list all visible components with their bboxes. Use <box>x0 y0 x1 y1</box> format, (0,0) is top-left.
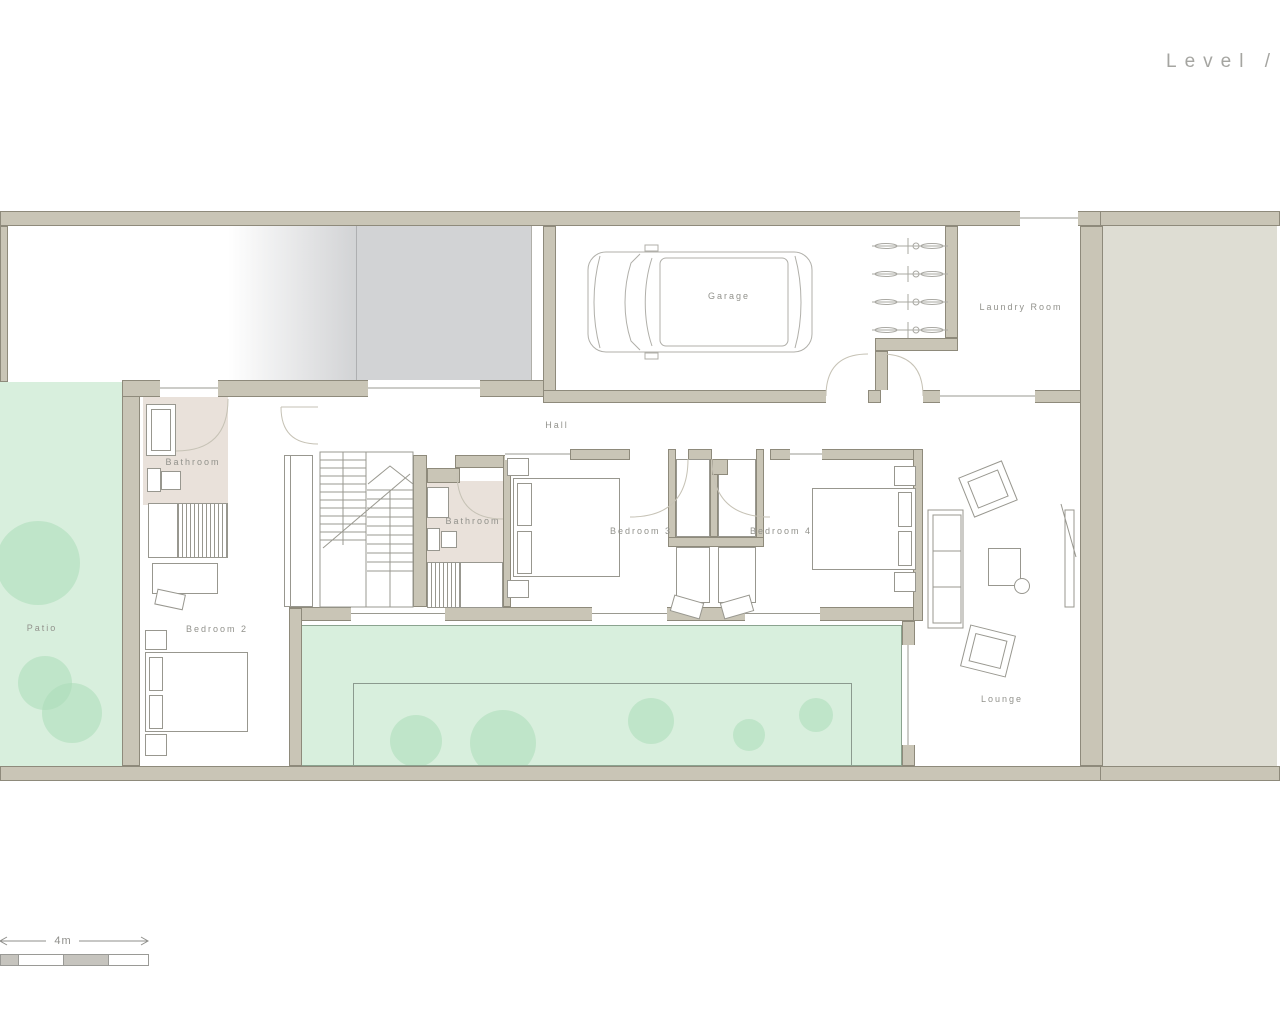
wall-segment <box>875 338 958 351</box>
tree-icon <box>0 521 80 605</box>
wardrobe-rail <box>427 562 460 608</box>
desk <box>152 563 218 594</box>
room-label-bathroom-1: Bathroom <box>165 457 220 467</box>
scale-bar <box>0 954 149 966</box>
toilet-tank <box>427 528 440 551</box>
closet <box>284 455 313 607</box>
armchair <box>961 625 1016 677</box>
toilet-bowl <box>161 471 181 490</box>
door-post <box>868 390 881 403</box>
scale-label: 4m <box>49 935 76 947</box>
window <box>902 645 915 745</box>
car-icon <box>588 245 812 359</box>
pillow <box>517 483 532 526</box>
wardrobe <box>460 562 503 608</box>
wall-segment <box>455 455 505 468</box>
window <box>1020 211 1078 226</box>
toilet-tank <box>147 468 161 492</box>
room-label-bedroom-4: Bedroom 4 <box>750 526 812 536</box>
desk <box>718 547 756 603</box>
nightstand <box>507 580 529 598</box>
tree-icon <box>628 698 674 744</box>
window <box>790 449 822 460</box>
closet-line <box>290 456 291 606</box>
garage-door <box>531 226 543 380</box>
page-title: Level / <box>1166 51 1278 73</box>
nightstand <box>507 458 529 476</box>
wall-segment <box>0 226 8 382</box>
room-label-laundry-room: Laundry Room <box>979 302 1062 312</box>
nightstand <box>894 572 916 592</box>
wall-segment <box>0 766 1280 781</box>
pillow <box>149 695 163 729</box>
door-opening <box>881 390 923 403</box>
door-opening <box>826 390 868 403</box>
window <box>160 380 218 397</box>
scale-segment <box>18 955 63 965</box>
wall-segment <box>668 537 764 547</box>
side-area <box>1103 226 1277 766</box>
closet <box>676 459 710 537</box>
sink <box>427 487 449 518</box>
pillow <box>149 657 163 691</box>
floor-plan-canvas: Level / <box>0 0 1280 1024</box>
driveway-ramp-gradient <box>228 226 356 380</box>
pillow <box>898 492 912 527</box>
wall-segment <box>1080 226 1103 766</box>
tree-icon <box>42 683 102 743</box>
wall-segment <box>945 226 958 338</box>
wardrobe <box>148 503 178 558</box>
room-label-bathroom-2: Bathroom <box>445 516 500 526</box>
room-label-bedroom-2: Bedroom 2 <box>186 624 248 634</box>
window <box>368 380 480 397</box>
sofa <box>928 510 963 628</box>
closet-block <box>712 459 728 475</box>
room-label-garage: Garage <box>708 291 750 301</box>
scale-segment <box>63 955 108 965</box>
wall-segment <box>543 226 556 397</box>
side-table <box>1014 578 1030 594</box>
wall-seam <box>1100 211 1101 226</box>
garden-area <box>297 625 902 766</box>
staircase <box>320 452 413 607</box>
room-label-hall: Hall <box>545 420 569 430</box>
scale-segment <box>108 955 148 965</box>
bike-rack-icon <box>872 238 948 338</box>
room-label-bedroom-3: Bedroom 3 <box>610 526 672 536</box>
pillow <box>898 531 912 566</box>
desk <box>676 547 710 603</box>
window <box>745 607 820 621</box>
nightstand <box>145 630 167 650</box>
wall-seam <box>1100 766 1101 781</box>
room-label-patio: Patio <box>27 623 58 633</box>
patio-area <box>0 382 122 766</box>
scale-segment <box>1 955 18 965</box>
pillow <box>517 531 532 574</box>
toilet-bowl <box>441 531 457 548</box>
driveway-landing <box>356 226 531 380</box>
tree-icon <box>799 698 833 732</box>
tree-icon <box>733 719 765 751</box>
nightstand <box>145 734 167 756</box>
room-label-lounge: Lounge <box>981 694 1023 704</box>
window <box>592 607 667 621</box>
armchair <box>959 461 1017 517</box>
wall-segment <box>427 468 460 483</box>
shower-inner <box>151 409 171 451</box>
tree-icon <box>390 715 442 766</box>
wardrobe-rail <box>178 503 228 558</box>
wall-segment <box>570 449 630 460</box>
window <box>351 607 445 621</box>
wall-segment <box>413 455 427 607</box>
nightstand <box>894 466 916 486</box>
wall-segment <box>122 380 140 766</box>
wall-segment <box>289 608 302 766</box>
tv <box>1061 504 1076 607</box>
window <box>940 390 1035 403</box>
wall-segment <box>0 211 1280 226</box>
